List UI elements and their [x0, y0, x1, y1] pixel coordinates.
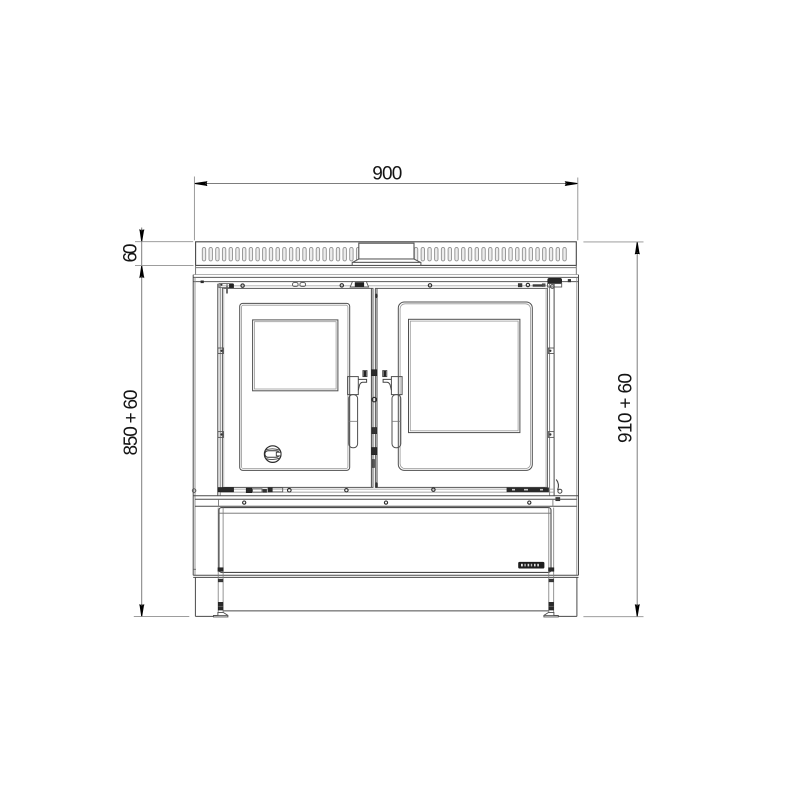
- svg-text:910 + 60: 910 + 60: [616, 373, 637, 443]
- svg-text:900: 900: [372, 163, 402, 184]
- svg-text:850 + 60: 850 + 60: [121, 390, 142, 456]
- svg-text:60: 60: [121, 244, 142, 263]
